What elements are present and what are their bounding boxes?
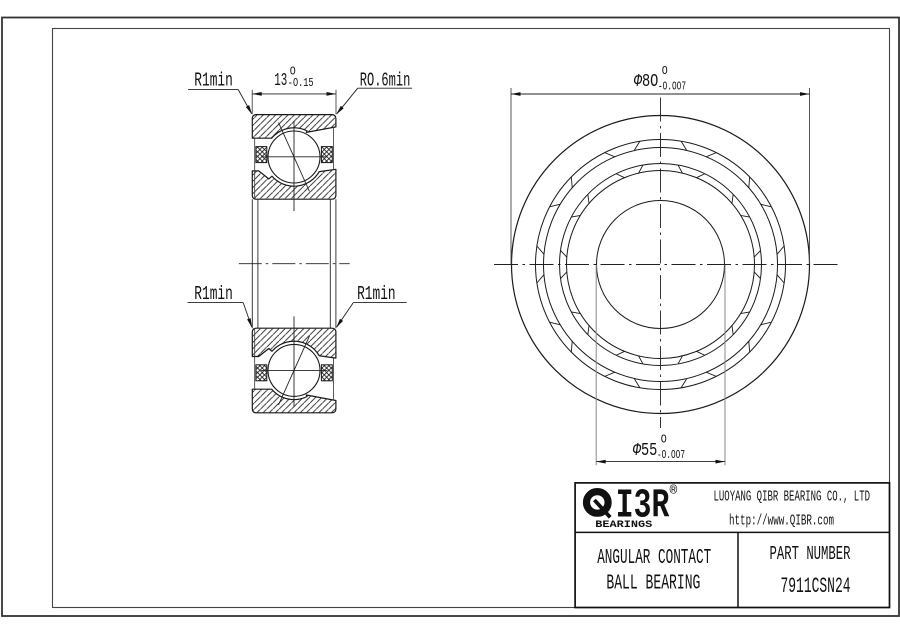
svg-text:13: 13 (274, 70, 287, 91)
svg-text:-O.15: -O.15 (288, 77, 314, 90)
svg-text:LUOYANG QIBR BEARING CO., LTD: LUOYANG QIBR BEARING CO., LTD (714, 490, 871, 506)
svg-text:PART NUMBER: PART NUMBER (770, 543, 851, 565)
svg-text:®: ® (670, 483, 678, 498)
svg-text:BALL BEARING: BALL BEARING (606, 573, 700, 596)
svg-text:O: O (662, 65, 668, 78)
svg-text:R1min: R1min (357, 283, 396, 305)
svg-text:R1min: R1min (194, 283, 233, 305)
svg-text:BEARINGS: BEARINGS (595, 519, 652, 531)
svg-text:O: O (661, 434, 667, 447)
svg-text:Φ55: Φ55 (633, 440, 658, 461)
svg-text:ANGULAR CONTACT: ANGULAR CONTACT (597, 547, 711, 570)
svg-text:-O.OO7: -O.OO7 (657, 449, 685, 462)
svg-text:http://www.QIBR.com: http://www.QIBR.com (729, 513, 834, 529)
svg-text:Φ8O: Φ8O (634, 71, 659, 92)
svg-text:R1min: R1min (194, 70, 233, 92)
svg-text:-O.OO7: -O.OO7 (658, 81, 686, 94)
svg-text:7911CSN24: 7911CSN24 (781, 574, 851, 599)
